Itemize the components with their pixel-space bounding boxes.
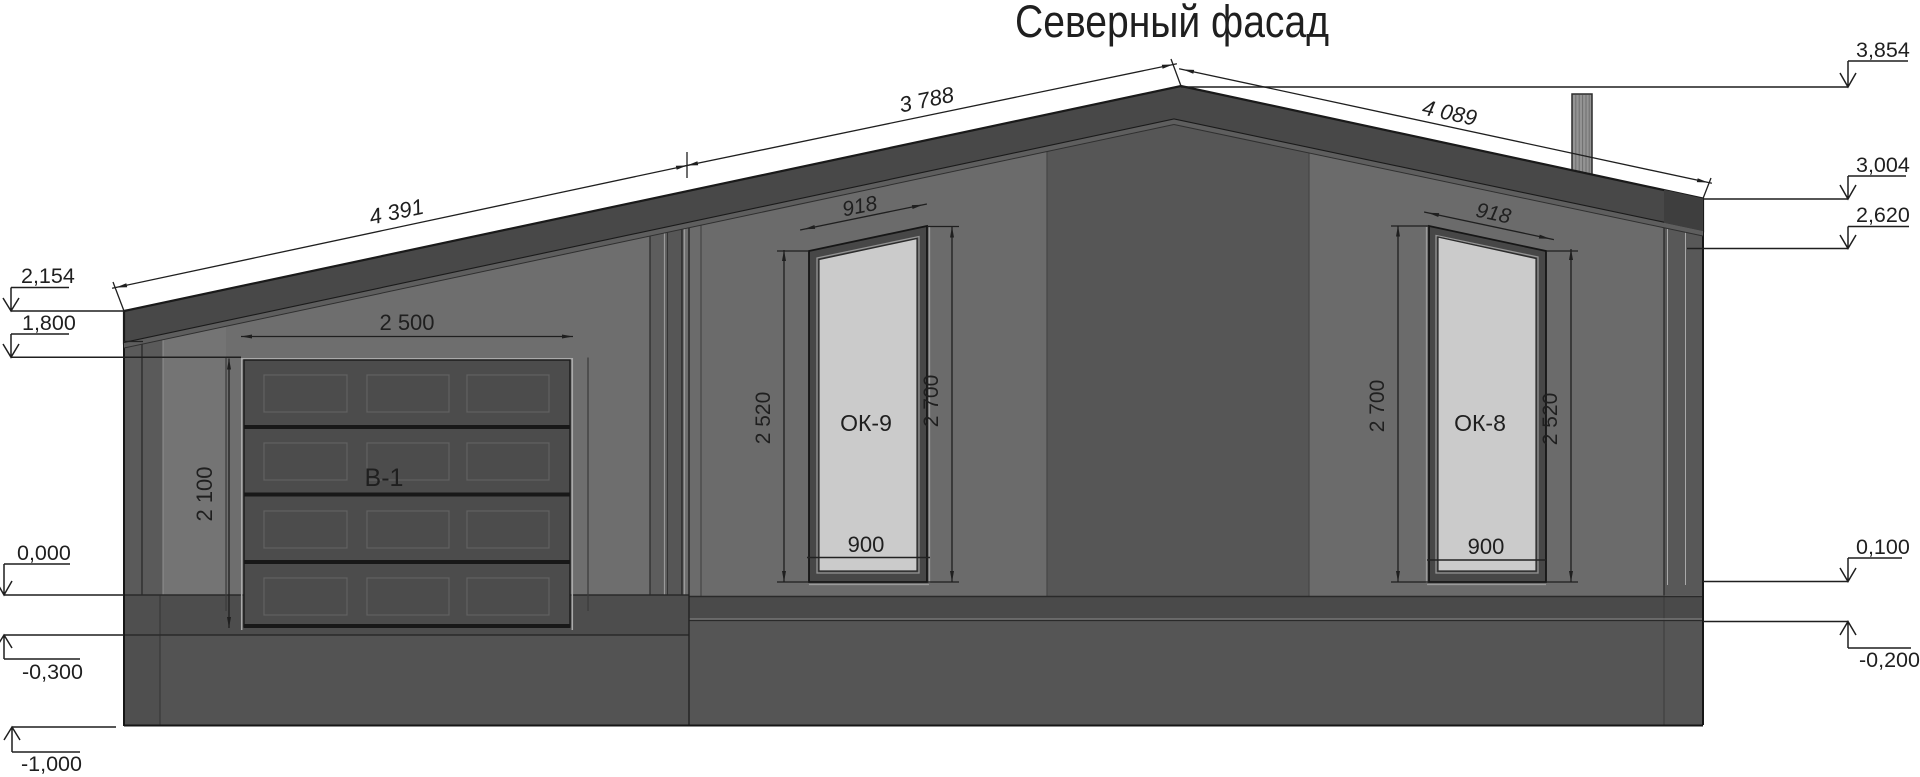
svg-text:0,000: 0,000 — [17, 541, 71, 565]
svg-text:4 089: 4 089 — [1420, 95, 1479, 131]
svg-text:0,100: 0,100 — [1856, 535, 1910, 559]
svg-text:-0,300: -0,300 — [22, 660, 83, 684]
svg-text:2,154: 2,154 — [21, 264, 75, 288]
svg-text:2,620: 2,620 — [1856, 203, 1910, 227]
svg-text:2 700: 2 700 — [920, 375, 943, 428]
svg-text:2 520: 2 520 — [752, 392, 775, 445]
svg-text:ОК-9: ОК-9 — [840, 410, 892, 436]
svg-text:ОК-8: ОК-8 — [1454, 410, 1506, 436]
svg-text:2 500: 2 500 — [379, 310, 434, 335]
svg-text:900: 900 — [1468, 534, 1505, 559]
svg-text:4 391: 4 391 — [367, 194, 426, 230]
svg-text:1,800: 1,800 — [22, 311, 76, 335]
svg-text:3,004: 3,004 — [1856, 153, 1910, 177]
svg-text:2 520: 2 520 — [1539, 393, 1562, 446]
svg-text:2 700: 2 700 — [1366, 380, 1389, 433]
svg-text:Северный фасад: Северный фасад — [1015, 0, 1329, 47]
svg-text:В-1: В-1 — [365, 464, 404, 492]
svg-text:-0,200: -0,200 — [1859, 648, 1920, 672]
svg-text:2 100: 2 100 — [192, 466, 217, 521]
svg-text:3 788: 3 788 — [897, 82, 957, 118]
svg-text:3,854: 3,854 — [1856, 38, 1910, 62]
svg-text:-1,000: -1,000 — [21, 752, 82, 776]
svg-text:900: 900 — [848, 532, 885, 557]
